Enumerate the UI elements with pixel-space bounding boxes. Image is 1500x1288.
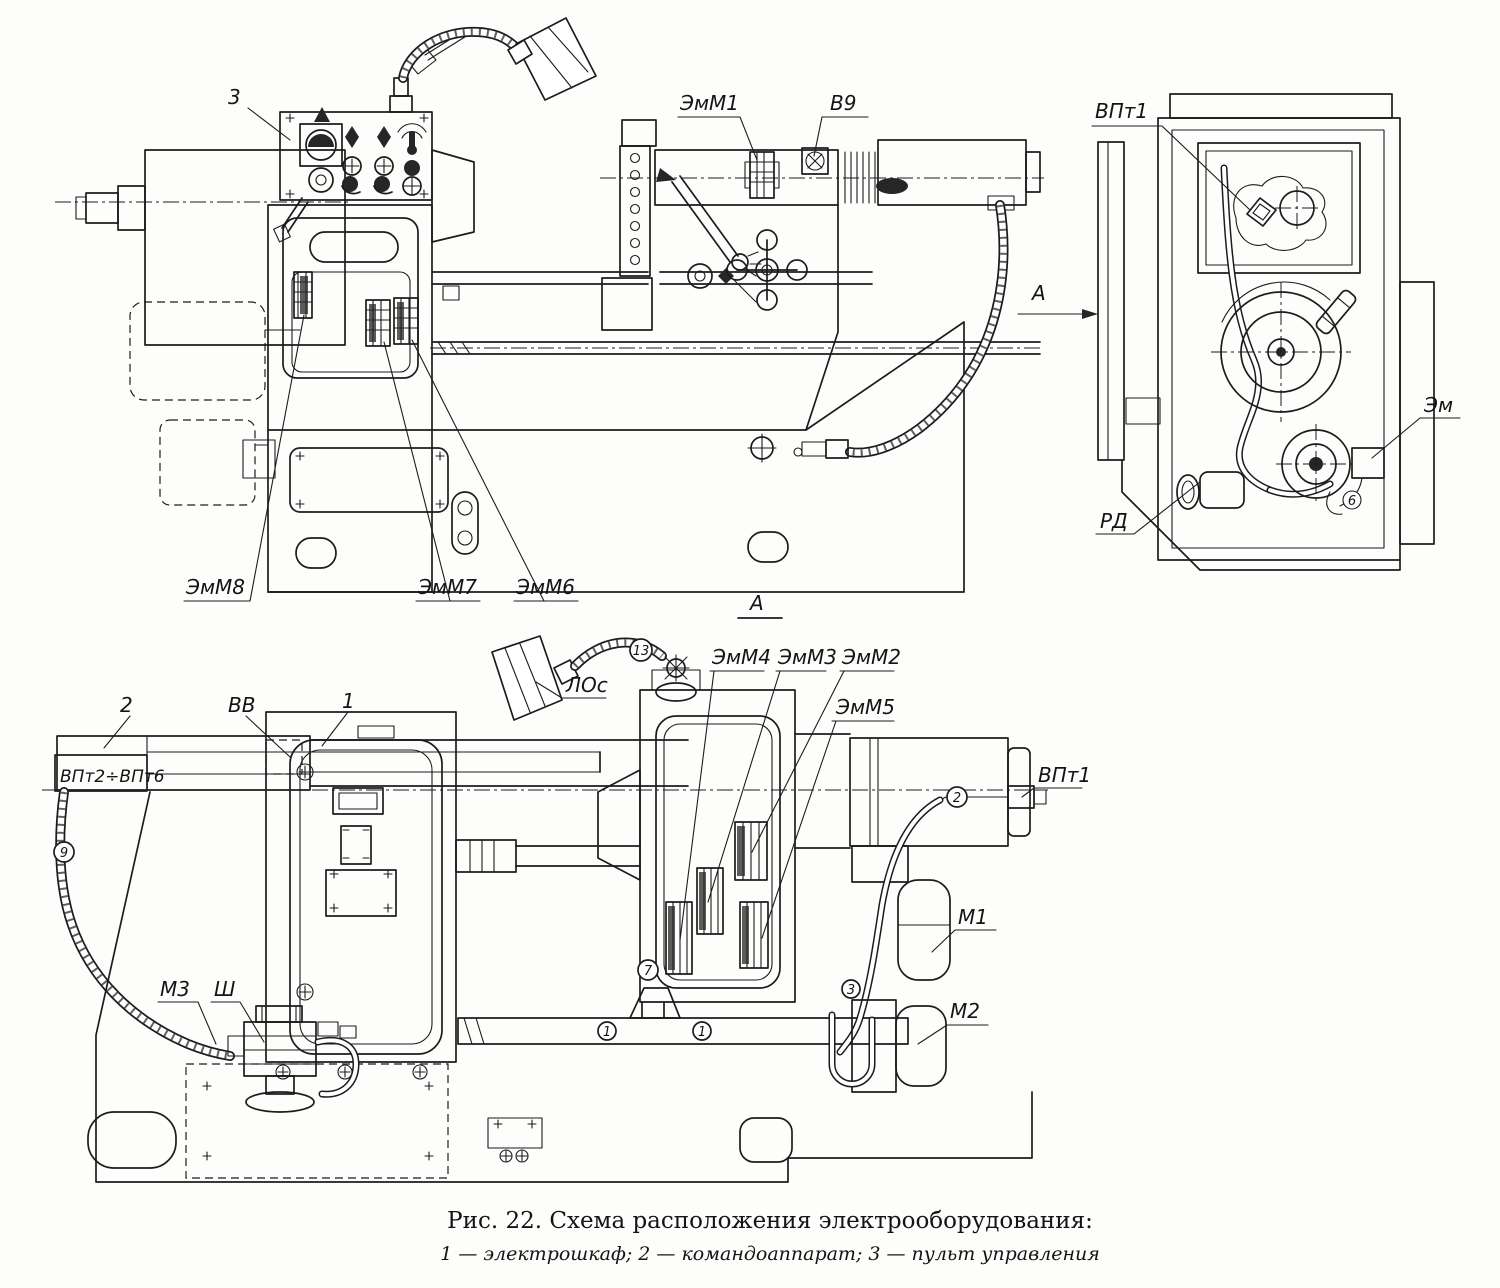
label-emm7: ЭмМ7 xyxy=(417,575,477,599)
solenoid-emm7 xyxy=(366,300,390,346)
view-arrow-label: А xyxy=(1030,281,1046,305)
figure-page: 3 ЭмМ1 В9 ЭмМ8 ЭмМ7 ЭмМ6 А xyxy=(0,0,1500,1288)
flexible-conduit xyxy=(794,205,1004,458)
panel-bracket xyxy=(432,150,474,242)
solenoid-emm3 xyxy=(697,868,723,934)
section-label-a: А xyxy=(748,591,764,615)
label-rd: РД xyxy=(1100,509,1128,533)
wire-number-9: 9 xyxy=(60,846,68,861)
label-emm3: ЭмМ3 xyxy=(777,645,837,669)
label-vpt1: ВПт1 xyxy=(1095,99,1148,123)
end-view-labels: ВПт1 Эм РД xyxy=(1092,99,1460,534)
wire-number-1b: 1 xyxy=(698,1025,706,1040)
ref-label-1: 1 xyxy=(342,689,355,713)
solenoid-emm5 xyxy=(740,902,768,968)
label-m3: М3 xyxy=(160,977,190,1001)
label-sh: Ш xyxy=(214,977,235,1001)
caption-legend: 1 — электрошкаф; 2 — командоаппарат; 3 —… xyxy=(440,1243,1100,1265)
label-emm6: ЭмМ6 xyxy=(515,575,575,599)
front-view: 3 ЭмМ1 В9 ЭмМ8 ЭмМ7 ЭмМ6 xyxy=(55,18,1044,601)
solenoid-emm2 xyxy=(735,822,767,880)
knob[interactable] xyxy=(309,168,333,192)
plan-view: А ВПт2÷ВПт6 9 xyxy=(42,591,1091,1182)
label-emm1: ЭмМ1 xyxy=(679,91,739,115)
ref-label-3: 3 xyxy=(228,85,241,109)
control-panel xyxy=(274,107,474,242)
spindle-pulley xyxy=(1211,282,1358,422)
caption-title: Рис. 22. Схема расположения электрообору… xyxy=(447,1208,1093,1234)
wire-number-1a: 1 xyxy=(603,1025,611,1040)
cabinet-door[interactable] xyxy=(290,740,442,1054)
dresser-column xyxy=(620,120,656,276)
workhead-block xyxy=(76,150,345,505)
button[interactable] xyxy=(377,126,391,148)
electrical-cabinet xyxy=(266,712,456,1079)
label-emm4: ЭмМ4 xyxy=(711,645,771,669)
wire-number-3: 3 xyxy=(847,983,855,998)
label-em: Эм xyxy=(1423,393,1453,417)
end-view: А xyxy=(1018,94,1460,570)
lamp-shade-icon xyxy=(492,636,562,720)
command-apparatus: ВПт2÷ВПт6 xyxy=(55,726,688,791)
motor-m2 xyxy=(832,1000,946,1092)
end-view-wiring xyxy=(1224,168,1330,494)
motor-hidden xyxy=(130,302,265,400)
wire-number-2: 2 xyxy=(953,791,961,806)
conduit-bar xyxy=(458,1018,908,1044)
label-v9: В9 xyxy=(830,91,856,115)
wheelhead-plan xyxy=(795,734,1046,882)
solenoid-emm8 xyxy=(294,272,312,318)
lamp-shade-icon xyxy=(516,18,596,100)
wire-number-7: 7 xyxy=(644,964,653,979)
label-m2: М2 xyxy=(950,999,980,1023)
label-m1: М1 xyxy=(958,905,988,929)
caption: Рис. 22. Схема расположения электрообору… xyxy=(440,1208,1100,1265)
label-vv: ВВ xyxy=(228,693,255,717)
label-emm5: ЭмМ5 xyxy=(835,695,895,719)
cross-handwheel[interactable] xyxy=(688,230,807,310)
motor-hidden xyxy=(160,420,255,505)
indicator-lamp xyxy=(314,107,330,122)
machine-bed xyxy=(268,205,964,592)
pump-m3 xyxy=(228,1006,356,1112)
wire-number-6: 6 xyxy=(1348,494,1356,509)
label-vpt1-plan: ВПт1 xyxy=(1038,763,1091,787)
pressure-relay-rd xyxy=(1177,472,1244,509)
label-emm2: ЭмМ2 xyxy=(841,645,901,669)
button[interactable] xyxy=(404,160,420,176)
solenoid-emm4 xyxy=(666,902,692,974)
machine-lamp xyxy=(390,18,596,112)
base-cover xyxy=(186,1064,448,1178)
ref-label-2: 2 xyxy=(120,693,133,717)
plan-rails: 1 1 7 xyxy=(456,840,908,1044)
table-rods xyxy=(432,272,1040,354)
solenoid-emm1 xyxy=(745,152,779,198)
wheelhead xyxy=(655,140,1040,430)
label-vpt-range: ВПт2÷ВПт6 xyxy=(60,767,165,787)
wire-number-13: 13 xyxy=(633,644,650,659)
label-los: ЛОс xyxy=(565,673,608,697)
spindle-housing xyxy=(598,670,795,1018)
electrical-layout-diagram: 3 ЭмМ1 В9 ЭмМ8 ЭмМ7 ЭмМ6 А xyxy=(0,0,1500,1288)
vpt1-switch[interactable] xyxy=(1247,198,1276,226)
button[interactable] xyxy=(345,126,359,148)
end-view-top-panel xyxy=(1198,143,1360,273)
vv-switch[interactable] xyxy=(266,740,302,774)
solenoid-emm6 xyxy=(394,298,418,344)
motor-m1 xyxy=(898,880,950,980)
label-emm8: ЭмМ8 xyxy=(185,575,245,599)
